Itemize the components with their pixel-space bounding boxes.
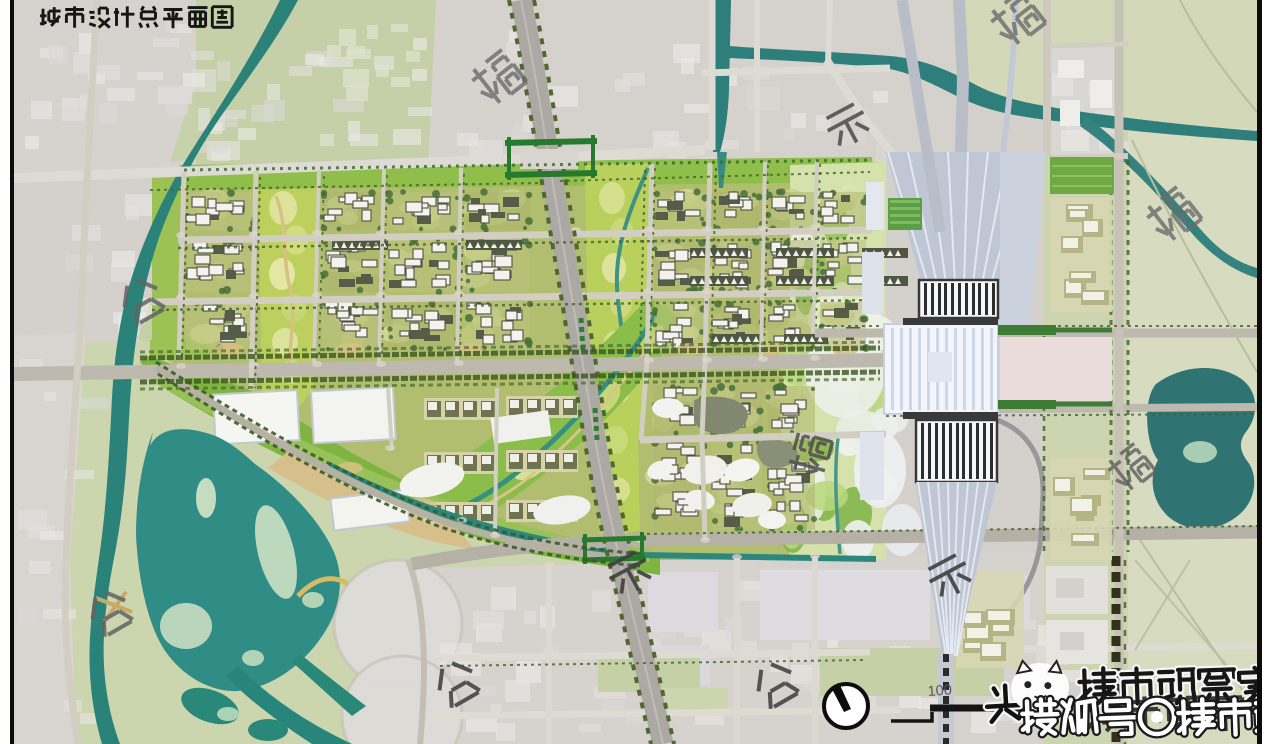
svg-text:100: 100 (927, 682, 952, 700)
